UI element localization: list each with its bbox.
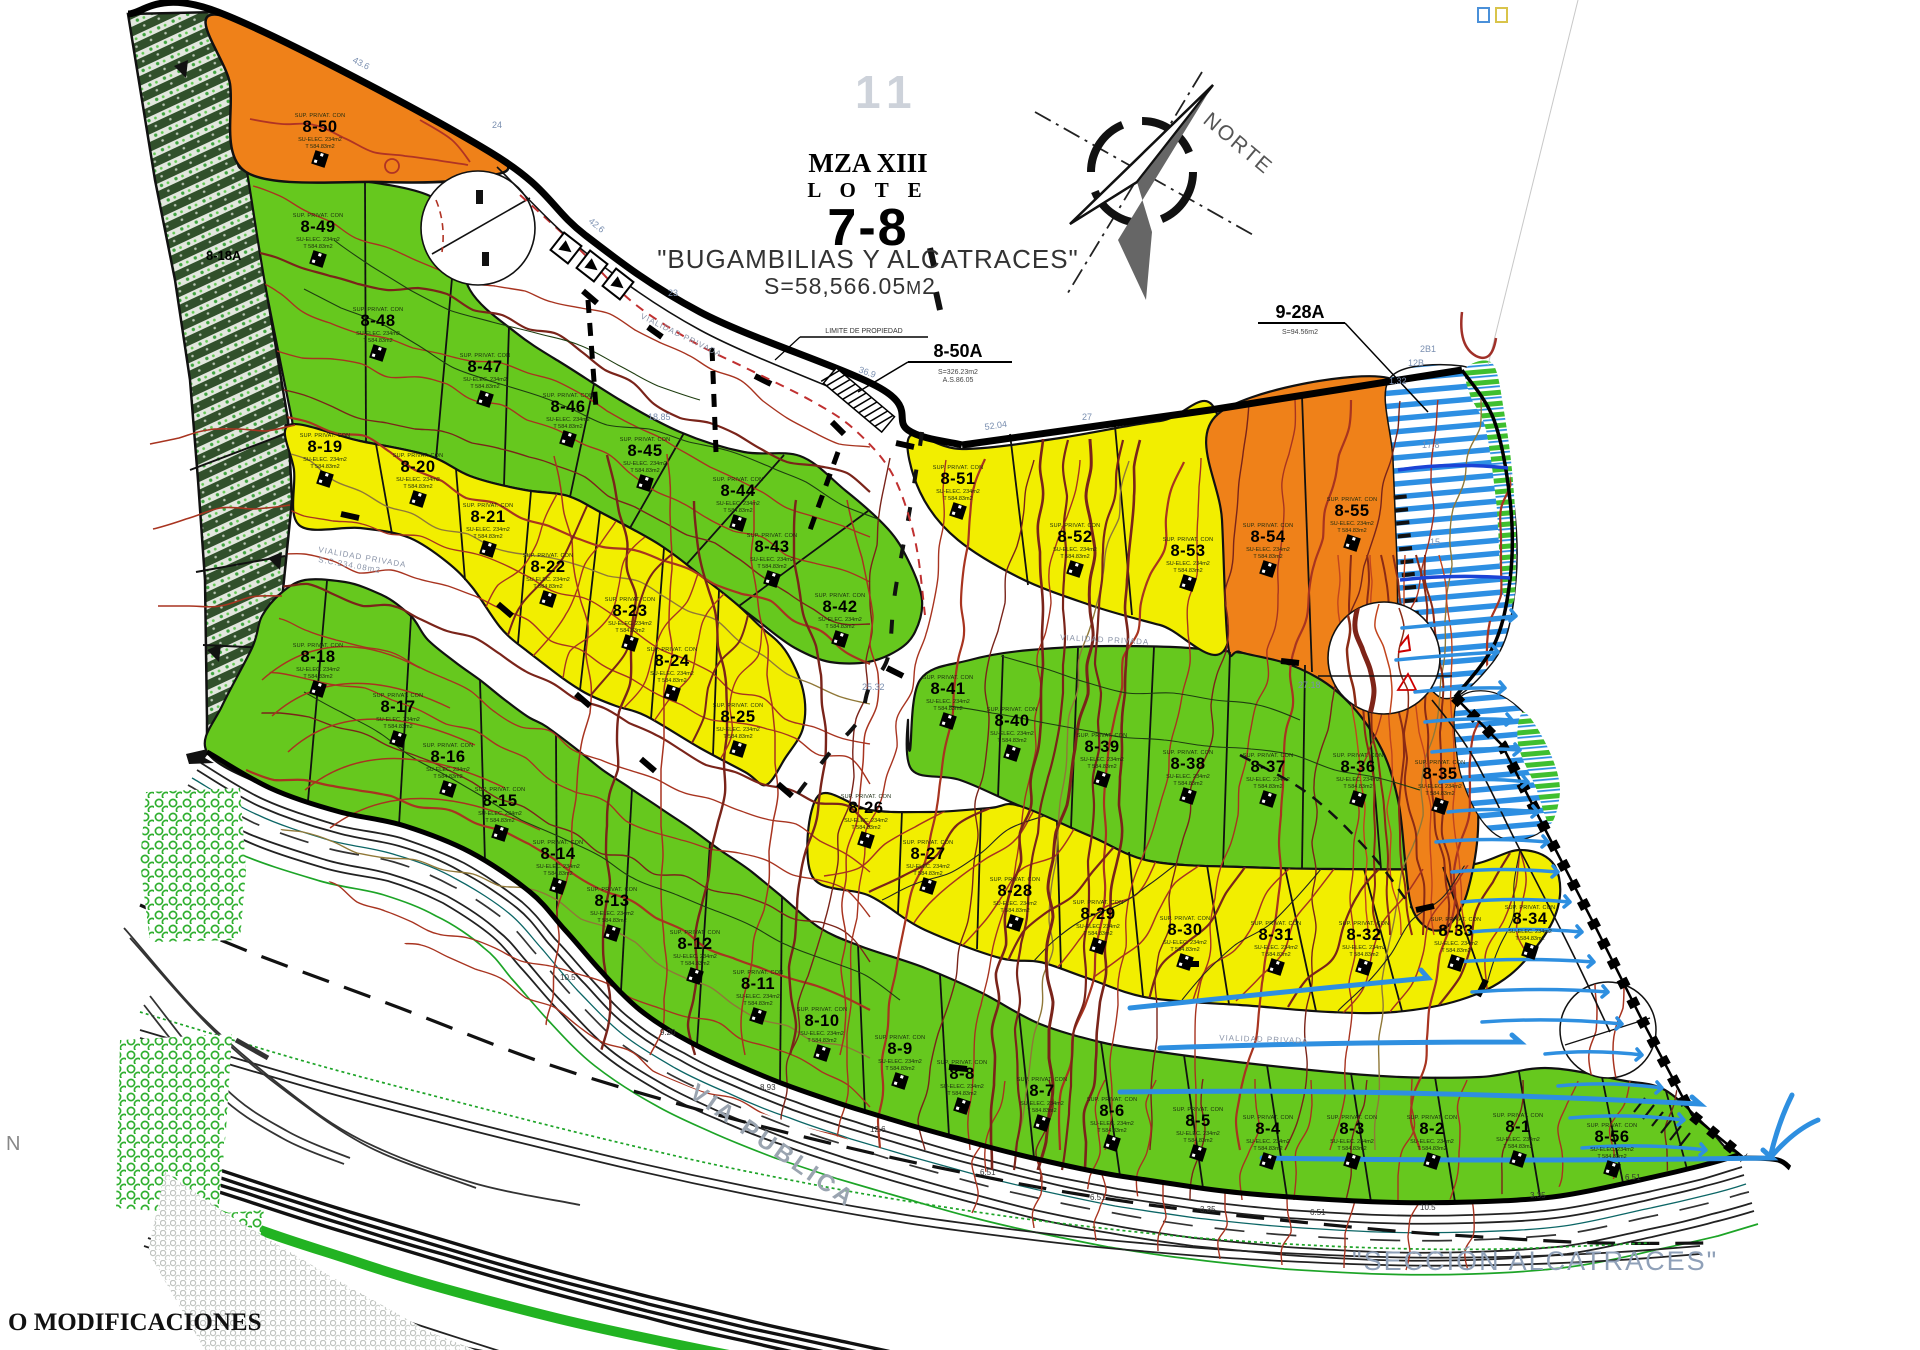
svg-text:8-15: 8-15 (482, 792, 517, 810)
svg-text:T 584.83m2: T 584.83m2 (1253, 784, 1282, 790)
svg-text:T 584.83m2: T 584.83m2 (723, 508, 752, 514)
svg-text:T 584.83m2: T 584.83m2 (310, 464, 339, 470)
svg-text:SU-ELEC. 234m2: SU-ELEC. 234m2 (396, 477, 440, 483)
svg-text:T 584.83m2: T 584.83m2 (1173, 568, 1202, 574)
svg-text:T 584.83m2: T 584.83m2 (1441, 948, 1470, 954)
svg-text:SU-ELEC. 234m2: SU-ELEC. 234m2 (546, 417, 590, 423)
svg-text:T 584.83m2: T 584.83m2 (933, 706, 962, 712)
svg-text:T 584.83m2: T 584.83m2 (470, 384, 499, 390)
svg-text:T 584.83m2: T 584.83m2 (947, 1091, 976, 1097)
svg-text:8-41: 8-41 (930, 680, 965, 698)
svg-text:SU-ELEC. 234m2: SU-ELEC. 234m2 (1176, 1131, 1220, 1137)
svg-text:T 584.83m2: T 584.83m2 (807, 1038, 836, 1044)
svg-text:SU-ELEC. 234m2: SU-ELEC. 234m2 (993, 901, 1037, 907)
svg-text:8-30: 8-30 (1167, 921, 1202, 939)
svg-text:T 584.83m2: T 584.83m2 (473, 534, 502, 540)
svg-text:T 584.83m2: T 584.83m2 (885, 1066, 914, 1072)
svg-text:SU-ELEC. 234m2: SU-ELEC. 234m2 (818, 617, 862, 623)
svg-text:8-50: 8-50 (302, 118, 337, 136)
svg-text:T 584.83m2: T 584.83m2 (305, 144, 334, 150)
svg-text:T 584.83m2: T 584.83m2 (1343, 784, 1372, 790)
svg-text:T 584.83m2: T 584.83m2 (403, 484, 432, 490)
svg-text:SU-ELEC. 234m2: SU-ELEC. 234m2 (844, 818, 888, 824)
svg-text:T 584.83m2: T 584.83m2 (743, 1001, 772, 1007)
svg-text:SU-ELEC. 234m2: SU-ELEC. 234m2 (1590, 1147, 1634, 1153)
svg-text:8-22: 8-22 (530, 558, 565, 576)
svg-text:T 584.83m2: T 584.83m2 (1261, 952, 1290, 958)
svg-text:9.20: 9.20 (660, 1028, 676, 1037)
svg-text:8-31: 8-31 (1258, 926, 1293, 944)
svg-text:T 584.83m2: T 584.83m2 (1083, 931, 1112, 937)
svg-text:SU-ELEC. 234m2: SU-ELEC. 234m2 (356, 331, 400, 337)
svg-text:8-44: 8-44 (720, 482, 755, 500)
svg-text:9-28A: 9-28A (1275, 302, 1324, 322)
svg-text:6.51: 6.51 (1310, 1208, 1326, 1217)
svg-text:8-1: 8-1 (1505, 1118, 1530, 1136)
svg-text:8-34: 8-34 (1512, 910, 1547, 928)
svg-text:15: 15 (1430, 537, 1440, 547)
svg-text:SU-ELEC. 234m2: SU-ELEC. 234m2 (1166, 774, 1210, 780)
svg-text:8-12: 8-12 (677, 935, 712, 953)
svg-text:8-43: 8-43 (754, 538, 789, 556)
svg-text:8-16: 8-16 (430, 748, 465, 766)
svg-text:8-55: 8-55 (1334, 502, 1369, 520)
svg-text:8-46: 8-46 (550, 398, 585, 416)
svg-text:12B: 12B (1408, 358, 1424, 368)
svg-text:8-36: 8-36 (1340, 758, 1375, 776)
svg-text:O MODIFICACIONES: O MODIFICACIONES (8, 1309, 262, 1336)
svg-text:SU-ELEC. 234m2: SU-ELEC. 234m2 (298, 137, 342, 143)
svg-text:8-19: 8-19 (307, 438, 342, 456)
svg-text:SU-ELEC. 234m2: SU-ELEC. 234m2 (736, 994, 780, 1000)
svg-text:6.51: 6.51 (980, 1168, 996, 1177)
svg-text:SU-ELEC. 234m2: SU-ELEC. 234m2 (936, 489, 980, 495)
svg-text:"SECCIÓN ALCATRACES": "SECCIÓN ALCATRACES" (1352, 1245, 1718, 1276)
svg-text:12.6: 12.6 (870, 1125, 886, 1134)
svg-text:T 584.83m2: T 584.83m2 (597, 918, 626, 924)
svg-text:T 584.83m2: T 584.83m2 (630, 468, 659, 474)
svg-text:8-3: 8-3 (1339, 1120, 1364, 1138)
svg-text:8-7: 8-7 (1029, 1082, 1054, 1100)
svg-text:T 584.83m2: T 584.83m2 (1597, 1154, 1626, 1160)
svg-text:T 584.83m2: T 584.83m2 (1503, 1144, 1532, 1150)
svg-text:SU-ELEC. 234m2: SU-ELEC. 234m2 (1336, 777, 1380, 783)
svg-text:8-9: 8-9 (887, 1040, 912, 1058)
svg-text:8-32: 8-32 (1346, 926, 1381, 944)
svg-text:SU-ELEC. 234m2: SU-ELEC. 234m2 (1418, 784, 1462, 790)
svg-text:T 584.83m2: T 584.83m2 (1097, 1128, 1126, 1134)
svg-text:8-53: 8-53 (1170, 542, 1205, 560)
svg-text:"BUGAMBILIAS Y ALCATRACES": "BUGAMBILIAS Y ALCATRACES" (657, 244, 1079, 274)
svg-text:T 584.83m2: T 584.83m2 (997, 738, 1026, 744)
svg-text:SU-ELEC. 234m2: SU-ELEC. 234m2 (940, 1084, 984, 1090)
svg-text:8-20: 8-20 (400, 458, 435, 476)
svg-text:SU-ELEC. 234m2: SU-ELEC. 234m2 (1254, 945, 1298, 951)
svg-text:8-21: 8-21 (470, 508, 505, 526)
svg-text:8-11: 8-11 (741, 975, 775, 993)
svg-text:T 584.83m2: T 584.83m2 (1349, 952, 1378, 958)
svg-text:8-5: 8-5 (1185, 1112, 1210, 1130)
svg-text:SU-ELEC. 234m2: SU-ELEC. 234m2 (608, 621, 652, 627)
svg-text:SU-ELEC. 234m2: SU-ELEC. 234m2 (800, 1031, 844, 1037)
svg-text:SU-ELEC. 234m2: SU-ELEC. 234m2 (590, 911, 634, 917)
svg-text:T 584.83m2: T 584.83m2 (553, 424, 582, 430)
svg-text:8-4: 8-4 (1255, 1120, 1281, 1138)
svg-text:T 584.83m2: T 584.83m2 (1337, 1146, 1366, 1152)
svg-text:8-18: 8-18 (300, 648, 335, 666)
svg-text:SU-ELEC. 234m2: SU-ELEC. 234m2 (650, 671, 694, 677)
svg-text:SU-ELEC. 234m2: SU-ELEC. 234m2 (466, 527, 510, 533)
svg-text:A.S.86.05: A.S.86.05 (943, 377, 974, 384)
svg-text:SU-ELEC. 234m2: SU-ELEC. 234m2 (716, 501, 760, 507)
svg-text:6.51: 6.51 (1625, 1173, 1641, 1182)
svg-text:8-6: 8-6 (1099, 1102, 1124, 1120)
svg-text:T 584.83m2: T 584.83m2 (1087, 764, 1116, 770)
svg-text:8-48: 8-48 (360, 312, 395, 330)
svg-text:S=94.56m2: S=94.56m2 (1282, 329, 1318, 336)
svg-text:SU-ELEC. 234m2: SU-ELEC. 234m2 (296, 667, 340, 673)
svg-text:8-28: 8-28 (997, 882, 1032, 900)
svg-text:8-14: 8-14 (540, 845, 575, 863)
svg-text:T 584.83m2: T 584.83m2 (1253, 1146, 1282, 1152)
svg-text:SU-ELEC. 234m2: SU-ELEC. 234m2 (1342, 945, 1386, 951)
svg-text:SU-ELEC. 234m2: SU-ELEC. 234m2 (1246, 777, 1290, 783)
svg-text:T 584.83m2: T 584.83m2 (1060, 554, 1089, 560)
svg-text:8-54: 8-54 (1250, 528, 1285, 546)
svg-text:8-17: 8-17 (380, 698, 415, 716)
svg-text:T 584.83m2: T 584.83m2 (543, 871, 572, 877)
svg-text:SU-ELEC. 234m2: SU-ELEC. 234m2 (478, 811, 522, 817)
svg-text:8-40: 8-40 (994, 712, 1029, 730)
svg-text:8.93: 8.93 (760, 1083, 776, 1092)
svg-text:T 584.83m2: T 584.83m2 (1027, 1108, 1056, 1114)
svg-text:LIMITE DE PROPIEDAD: LIMITE DE PROPIEDAD (825, 328, 902, 335)
svg-text:T 584.83m2: T 584.83m2 (943, 496, 972, 502)
svg-text:8-35: 8-35 (1422, 765, 1457, 783)
svg-text:SU-ELEC. 234m2: SU-ELEC. 234m2 (296, 237, 340, 243)
svg-text:8-42: 8-42 (822, 598, 857, 616)
svg-text:T 584.83m2: T 584.83m2 (723, 734, 752, 740)
svg-text:SU-ELEC. 234m2: SU-ELEC. 234m2 (376, 717, 420, 723)
svg-text:25.32: 25.32 (862, 682, 885, 692)
svg-text:8-39: 8-39 (1084, 738, 1119, 756)
svg-text:8-52: 8-52 (1057, 528, 1092, 546)
svg-text:SU-ELEC. 234m2: SU-ELEC. 234m2 (1080, 757, 1124, 763)
svg-text:3.35: 3.35 (1200, 1205, 1216, 1214)
svg-text:SU-ELEC. 234m2: SU-ELEC. 234m2 (1053, 547, 1097, 553)
svg-text:10.5: 10.5 (1420, 1203, 1436, 1212)
svg-text:T 584.83m2: T 584.83m2 (303, 674, 332, 680)
svg-text:23: 23 (668, 288, 678, 298)
svg-text:8-56: 8-56 (1594, 1128, 1629, 1146)
svg-text:8-25: 8-25 (720, 708, 755, 726)
svg-text:T 584.83m2: T 584.83m2 (825, 624, 854, 630)
svg-text:6.51: 6.51 (1090, 1193, 1106, 1202)
svg-text:T 584.83m2: T 584.83m2 (1253, 554, 1282, 560)
svg-text:8-29: 8-29 (1080, 905, 1115, 923)
svg-text:SU-ELEC. 234m2: SU-ELEC. 234m2 (716, 727, 760, 733)
svg-text:T 584.83m2: T 584.83m2 (913, 871, 942, 877)
svg-text:SU-ELEC. 234m2: SU-ELEC. 234m2 (1246, 1139, 1290, 1145)
svg-text:T 584.83m2: T 584.83m2 (657, 678, 686, 684)
svg-text:SU-ELEC. 234m2: SU-ELEC. 234m2 (426, 767, 470, 773)
svg-text:17.8: 17.8 (1422, 440, 1440, 450)
svg-text:SU-ELEC. 234m2: SU-ELEC. 234m2 (906, 864, 950, 870)
svg-text:SU-ELEC. 234m2: SU-ELEC. 234m2 (926, 699, 970, 705)
svg-text:SU-ELEC. 234m2: SU-ELEC. 234m2 (1246, 547, 1290, 553)
svg-text:MZA XIII: MZA XIII (808, 148, 927, 178)
svg-text:S=326.23m2: S=326.23m2 (938, 369, 978, 376)
svg-text:T 584.83m2: T 584.83m2 (1173, 781, 1202, 787)
svg-text:1.32: 1.32 (1389, 376, 1407, 386)
svg-text:SU-ELEC. 234m2: SU-ELEC. 234m2 (1166, 561, 1210, 567)
svg-text:8-18A: 8-18A (206, 248, 242, 263)
svg-text:8-37: 8-37 (1250, 758, 1285, 776)
svg-text:8-45: 8-45 (627, 442, 662, 460)
svg-text:8-38: 8-38 (1170, 755, 1205, 773)
svg-text:SU-ELEC. 234m2: SU-ELEC. 234m2 (1163, 940, 1207, 946)
svg-text:SU-ELEC. 234m2: SU-ELEC. 234m2 (1076, 924, 1120, 930)
svg-text:T 584.83m2: T 584.83m2 (533, 584, 562, 590)
svg-text:T 584.83m2: T 584.83m2 (757, 564, 786, 570)
svg-text:T 584.83m2: T 584.83m2 (1000, 908, 1029, 914)
svg-text:18.85: 18.85 (648, 412, 671, 422)
svg-text:8-8: 8-8 (949, 1065, 974, 1083)
svg-text:T 584.83m2: T 584.83m2 (851, 825, 880, 831)
svg-text:8-33: 8-33 (1438, 922, 1473, 940)
svg-text:SU-ELEC. 234m2: SU-ELEC. 234m2 (990, 731, 1034, 737)
svg-text:T 584.83m2: T 584.83m2 (383, 724, 412, 730)
svg-text:8-13: 8-13 (594, 892, 629, 910)
svg-text:T 584.83m2: T 584.83m2 (1337, 528, 1366, 534)
svg-text:10.5: 10.5 (560, 973, 576, 982)
svg-text:T 584.83m2: T 584.83m2 (1183, 1138, 1212, 1144)
svg-text:T 584.83m2: T 584.83m2 (680, 961, 709, 967)
svg-text:SU-ELEC. 234m2: SU-ELEC. 234m2 (1496, 1137, 1540, 1143)
svg-text:SU-ELEC. 234m2: SU-ELEC. 234m2 (878, 1059, 922, 1065)
svg-text:8-2: 8-2 (1419, 1120, 1444, 1138)
svg-text:T 584.83m2: T 584.83m2 (433, 774, 462, 780)
svg-text:8-23: 8-23 (612, 602, 647, 620)
svg-text:SU-ELEC. 234m2: SU-ELEC. 234m2 (1020, 1101, 1064, 1107)
svg-text:T 584.83m2: T 584.83m2 (363, 338, 392, 344)
svg-text:SU-ELEC. 234m2: SU-ELEC. 234m2 (463, 377, 507, 383)
svg-text:T 584.83m2: T 584.83m2 (1170, 947, 1199, 953)
svg-text:SU-ELEC. 234m2: SU-ELEC. 234m2 (623, 461, 667, 467)
svg-text:SU-ELEC. 234m2: SU-ELEC. 234m2 (1090, 1121, 1134, 1127)
svg-text:SU-ELEC. 234m2: SU-ELEC. 234m2 (1410, 1139, 1454, 1145)
svg-text:8-47: 8-47 (467, 358, 502, 376)
svg-text:8-49: 8-49 (300, 218, 335, 236)
svg-text:T 584.83m2: T 584.83m2 (1425, 791, 1454, 797)
svg-text:SU-ELEC. 234m2: SU-ELEC. 234m2 (1434, 941, 1478, 947)
svg-text:N: N (6, 1133, 20, 1155)
svg-text:8-10: 8-10 (804, 1012, 839, 1030)
svg-text:SU-ELEC. 234m2: SU-ELEC. 234m2 (673, 954, 717, 960)
svg-text:SU-ELEC. 234m2: SU-ELEC. 234m2 (1330, 521, 1374, 527)
svg-text:SU-ELEC. 234m2: SU-ELEC. 234m2 (536, 864, 580, 870)
svg-text:SU-ELEC. 234m2: SU-ELEC. 234m2 (526, 577, 570, 583)
svg-text:2B1: 2B1 (1420, 344, 1436, 354)
svg-text:11: 11 (855, 66, 920, 118)
svg-text:24: 24 (492, 120, 502, 130)
svg-text:SU-ELEC. 234m2: SU-ELEC. 234m2 (1508, 929, 1552, 935)
svg-text:8-27: 8-27 (910, 845, 945, 863)
svg-text:SU-ELEC. 234m2: SU-ELEC. 234m2 (303, 457, 347, 463)
svg-text:27.18: 27.18 (1298, 680, 1321, 690)
svg-text:8-50A: 8-50A (933, 341, 982, 361)
svg-text:8-51: 8-51 (940, 470, 975, 488)
svg-text:3.35: 3.35 (1530, 1191, 1546, 1200)
svg-text:T 584.83m2: T 584.83m2 (485, 818, 514, 824)
svg-text:8-24: 8-24 (654, 652, 689, 670)
svg-text:SU-ELEC. 234m2: SU-ELEC. 234m2 (750, 557, 794, 563)
svg-text:T 584.83m2: T 584.83m2 (303, 244, 332, 250)
svg-text:8-26: 8-26 (848, 799, 883, 817)
svg-text:T 584.83m2: T 584.83m2 (615, 628, 644, 634)
svg-text:T 584.83m2: T 584.83m2 (1417, 1146, 1446, 1152)
svg-text:T 584.83m2: T 584.83m2 (1515, 936, 1544, 942)
svg-text:27: 27 (1082, 412, 1092, 422)
svg-text:SU-ELEC. 234m2: SU-ELEC. 234m2 (1330, 1139, 1374, 1145)
